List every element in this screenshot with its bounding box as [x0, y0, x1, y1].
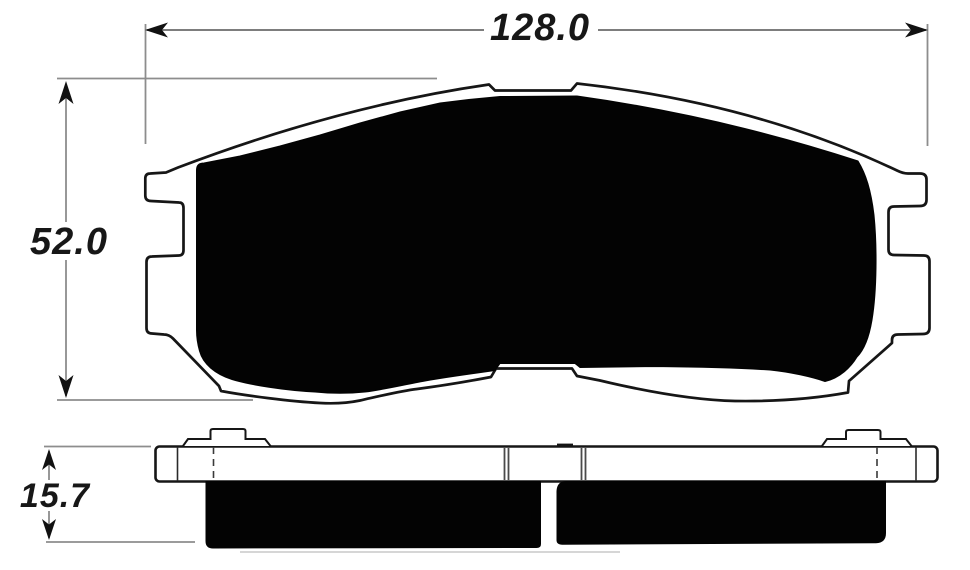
svg-text:15.7: 15.7: [20, 477, 91, 515]
svg-text:128.0: 128.0: [490, 7, 590, 49]
svg-text:52.0: 52.0: [30, 221, 108, 263]
